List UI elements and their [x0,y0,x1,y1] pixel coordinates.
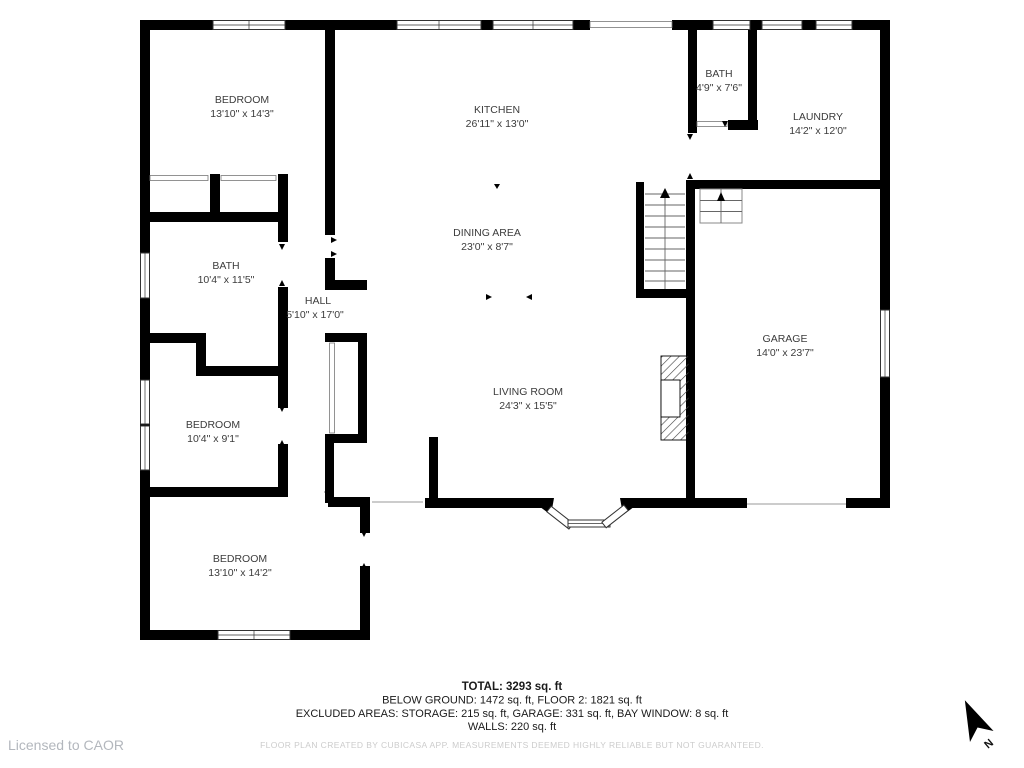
summary-areas: BELOW GROUND: 1472 sq. ft, FLOOR 2: 1821… [382,695,642,707]
wall [210,174,220,214]
room-label-laundry: LAUNDRY [793,111,843,123]
wall [325,434,367,443]
wall [728,120,758,130]
fireplace [661,356,689,440]
wall [429,437,438,500]
wall [278,376,288,408]
wall [748,20,757,120]
closet-door [697,122,727,127]
bay-window [528,498,646,529]
room-dims-bath-main: 10'4" x 11'5" [198,274,255,286]
license-text: Licensed to CAOR [8,737,124,753]
north-label: N [982,737,996,751]
wall [636,182,644,298]
wall [846,498,890,508]
floor-plan: BEDROOM 13'10" x 14'3" KITCHEN 26'11" x … [0,0,1024,768]
wall [686,180,695,507]
room-dims-garage: 14'0" x 23'7" [756,347,814,359]
closet-door [150,176,208,181]
room-dims-dining: 23'0" x 8'7" [461,241,513,253]
summary-excluded: EXCLUDED AREAS: STORAGE: 215 sq. ft, GAR… [296,708,729,720]
wall [325,280,367,290]
wall [140,20,150,640]
wall [140,487,280,497]
north-arrow-icon [953,695,993,742]
closet-door [221,176,276,181]
room-label-bath-main: BATH [212,260,239,272]
wall [425,498,545,508]
wall [328,497,370,507]
room-label-hall: HALL [305,295,331,307]
room-dims-bath-upper: 4'9" x 7'6" [696,82,742,94]
summary-total: TOTAL: 3293 sq. ft [462,681,563,693]
room-label-bedroom-bottom: BEDROOM [213,553,267,565]
summary-walls: WALLS: 220 sq. ft [468,721,556,733]
summary-block: TOTAL: 3293 sq. ft BELOW GROUND: 1472 sq… [260,681,764,750]
room-dims-kitchen: 26'11" x 13'0" [466,118,529,130]
wall [688,20,697,133]
wall [880,20,890,508]
wall [278,174,288,242]
room-dims-living: 24'3" x 15'5" [499,400,557,412]
room-dims-bedroom-mid: 10'4" x 9'1" [187,433,239,445]
room-label-bedroom-tl: BEDROOM [215,94,269,106]
room-dims-bedroom-tl: 13'10" x 14'3" [210,108,274,120]
compass: N [953,695,996,752]
room-label-living: LIVING ROOM [493,386,563,398]
wall [695,180,880,189]
room-label-kitchen: KITCHEN [474,104,520,116]
room-dims-hall: 5'10" x 17'0" [286,309,344,321]
wall [325,20,335,235]
room-dims-bedroom-bottom: 13'10" x 14'2" [208,567,272,579]
stair-up-arrow-icon [660,188,670,198]
summary-disclaimer: FLOOR PLAN CREATED BY CUBICASA APP. MEAS… [260,740,764,750]
wall [358,333,367,443]
wall [690,498,747,508]
staircase-main [645,188,685,289]
wall [360,566,370,640]
room-label-bedroom-mid: BEDROOM [186,419,240,431]
room-label-garage: GARAGE [763,333,808,345]
room-label-bath-upper: BATH [705,68,732,80]
room-label-dining: DINING AREA [453,227,521,239]
wall-opening [590,22,672,28]
wall [140,333,200,343]
closet-door [330,343,335,433]
room-dims-laundry: 14'2" x 12'0" [789,125,847,137]
staircase-garage [700,189,742,223]
wall [636,289,692,298]
wall [278,287,288,376]
wall [196,366,288,376]
